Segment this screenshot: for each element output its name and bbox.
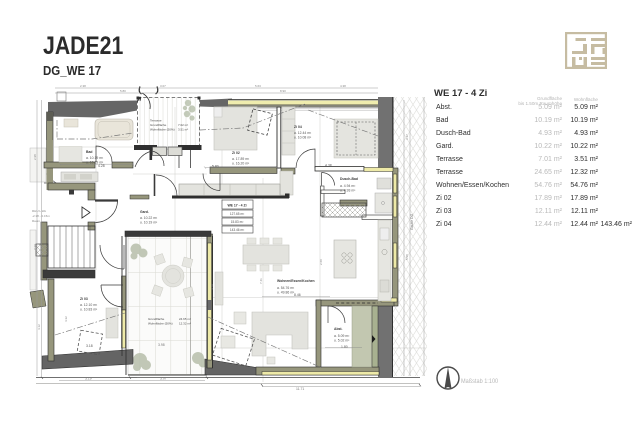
svg-text:3.18: 3.18 — [86, 344, 93, 348]
svg-text:Abst.: Abst. — [334, 327, 343, 331]
svg-text:Wohnfläche (50%): Wohnfläche (50%) — [150, 128, 175, 132]
svg-text:a. 5.09 m²: a. 5.09 m² — [334, 334, 350, 338]
svg-text:5.58: 5.58 — [405, 254, 409, 260]
svg-text:7.02 m²: 7.02 m² — [178, 123, 188, 127]
svg-text:2.60: 2.60 — [319, 259, 323, 265]
svg-text:8.46: 8.46 — [294, 293, 301, 297]
svg-text:a. 17.89 m²: a. 17.89 m² — [232, 157, 250, 161]
svg-text:5.80: 5.80 — [212, 165, 219, 169]
svg-text:Zi 03: Zi 03 — [80, 297, 88, 301]
svg-text:3.37: 3.37 — [405, 134, 409, 140]
svg-text:4.79: 4.79 — [210, 284, 214, 290]
svg-text:a. 10.19 m²: a. 10.19 m² — [86, 156, 104, 160]
svg-text:4.38: 4.38 — [325, 164, 332, 168]
svg-text:3.98: 3.98 — [158, 343, 165, 347]
svg-text:u. 4.93 m²: u. 4.93 m² — [340, 189, 356, 193]
svg-text:Raum: Raum — [32, 219, 41, 223]
svg-text:4.28: 4.28 — [98, 164, 105, 168]
svg-text:7.39: 7.39 — [33, 244, 37, 250]
svg-text:24.65 m²: 24.65 m² — [179, 317, 191, 321]
svg-text:Wohnfläche (50%): Wohnfläche (50%) — [148, 322, 173, 326]
svg-text:3.19: 3.19 — [85, 377, 92, 381]
svg-text:-2.38 - 0.15m: -2.38 - 0.15m — [32, 214, 50, 218]
svg-text:WE 17 - 4 Zi: WE 17 - 4 Zi — [227, 204, 246, 208]
svg-text:11.71: 11.71 — [296, 387, 304, 391]
svg-text:u. 10.83 m²: u. 10.83 m² — [80, 308, 98, 312]
svg-text:143.46 m²: 143.46 m² — [230, 228, 244, 232]
svg-text:3.07: 3.07 — [160, 377, 167, 381]
svg-text:4.12: 4.12 — [37, 324, 41, 330]
svg-text:Bad: Bad — [86, 150, 92, 154]
svg-text:5.80: 5.80 — [120, 89, 126, 93]
svg-text:2.98: 2.98 — [33, 154, 37, 160]
svg-text:4.38: 4.38 — [340, 84, 346, 88]
svg-text:3.51 m²: 3.51 m² — [178, 128, 188, 132]
svg-text:a. 12.44 m²: a. 12.44 m² — [294, 131, 312, 135]
svg-text:5.63: 5.63 — [255, 84, 261, 88]
svg-text:a. 54.76 m²: a. 54.76 m² — [277, 286, 295, 290]
svg-text:u. 16.20 m²: u. 16.20 m² — [232, 162, 250, 166]
svg-text:12.32 m²: 12.32 m² — [179, 322, 191, 326]
svg-text:2.38: 2.38 — [80, 84, 86, 88]
svg-text:u. 49.86 m²: u. 49.86 m² — [277, 291, 295, 295]
svg-text:15.83 m²: 15.83 m² — [231, 220, 244, 224]
svg-text:Zi 02: Zi 02 — [232, 151, 240, 155]
svg-text:1.80: 1.80 — [341, 345, 348, 349]
svg-text:Terrasse: Terrasse — [150, 119, 162, 123]
svg-text:u. 10.19 m²: u. 10.19 m² — [140, 221, 158, 225]
svg-text:Dusch-Bad: Dusch-Bad — [340, 177, 358, 181]
svg-text:Gard.: Gard. — [140, 210, 149, 214]
svg-text:u. 5.02 m²: u. 5.02 m² — [334, 339, 350, 343]
svg-text:a. 10.22 m²: a. 10.22 m² — [140, 216, 158, 220]
svg-text:3.07: 3.07 — [160, 84, 166, 88]
svg-text:8.90: 8.90 — [280, 89, 286, 93]
svg-text:Grundfläche: Grundfläche — [148, 317, 165, 321]
svg-text:a. 4.94 m²: a. 4.94 m² — [340, 184, 356, 188]
svg-text:127.65 m²: 127.65 m² — [230, 212, 244, 216]
svg-text:Gaube DG: Gaube DG — [410, 213, 414, 230]
svg-text:a. 12.10 m²: a. 12.10 m² — [80, 303, 98, 307]
svg-text:7.41: 7.41 — [259, 278, 263, 284]
svg-text:Grundfläche: Grundfläche — [150, 123, 167, 127]
svg-text:RHU L Wo: RHU L Wo — [32, 209, 47, 213]
svg-text:4.32: 4.32 — [64, 316, 68, 322]
svg-text:Wohnen/Essen/Kochen: Wohnen/Essen/Kochen — [277, 279, 315, 283]
svg-text:u. 10.08 m²: u. 10.08 m² — [294, 136, 312, 140]
svg-text:Zi 04: Zi 04 — [294, 125, 302, 129]
